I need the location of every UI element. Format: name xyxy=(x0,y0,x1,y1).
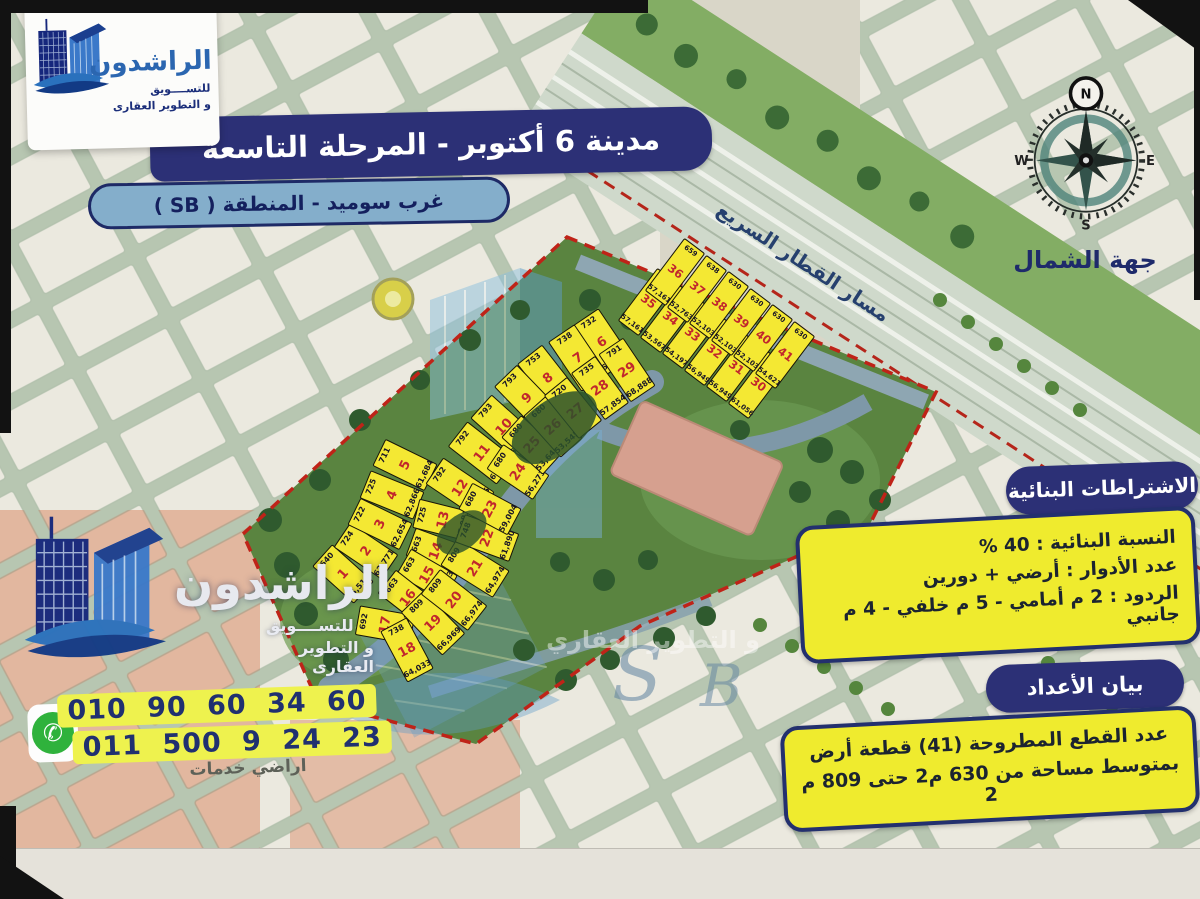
building-requirements-box: النسبة البنائية : 40 % عدد الأدوار : أرض… xyxy=(795,506,1200,665)
watermark-phrase: و التطوير العقاري xyxy=(546,626,760,654)
brand-tagline-2: و التطوير العقارى xyxy=(113,98,211,114)
watermark-letter-b: B xyxy=(699,652,743,720)
brand-tagline-1: للتســــويق xyxy=(150,82,211,97)
watermark-tagline-2: و التطوير العقارى xyxy=(236,638,374,676)
compass-rose: N S E W xyxy=(1008,72,1164,232)
north-direction-label: جهة الشمال xyxy=(1000,240,1170,280)
watermark-tagline-1: للتســــويق xyxy=(266,616,354,635)
requirement-line-3: الردود : 2 م أمامي - 5 م خلفي - 4 م جانب… xyxy=(819,583,1181,644)
watermark-brand-name: الراشدون xyxy=(174,556,391,610)
compass-e: E xyxy=(1146,154,1155,169)
photo-edge-right xyxy=(1194,0,1200,300)
counts-line-2: بمتوسط مساحة من 630 م2 حتى 809 م 2 xyxy=(800,752,1182,816)
contact-phones: 010 90 60 34 60 011 500 9 24 23 xyxy=(57,685,339,765)
zone-banner: غرب سوميد - المنطقة ( SB ) xyxy=(88,176,511,229)
watermark-logo: الراشدون للتســــويق و التطوير العقارى xyxy=(14,508,374,708)
page-title: مدينة 6 أكتوبر - المرحلة التاسعة xyxy=(202,122,661,166)
photo-edge-left xyxy=(0,13,11,433)
counts-box: عدد القطع المطروحة (41) قطعة أرض بمتوسط … xyxy=(780,705,1200,833)
paper-margin xyxy=(0,848,1200,899)
compass-s: S xyxy=(1081,219,1090,232)
title-banner: مدينة 6 أكتوبر - المرحلة التاسعة xyxy=(149,106,712,182)
counts-header: بيان الأعداد xyxy=(985,659,1185,714)
brand-name: الراشدون xyxy=(89,46,212,79)
photo-edge-top xyxy=(0,0,648,13)
compass-w: W xyxy=(1014,154,1029,169)
company-logo-card: الراشدون للتســــويق و التطوير العقارى xyxy=(24,0,220,150)
zone-label: غرب سوميد - المنطقة ( SB ) xyxy=(154,188,445,217)
compass-n: N xyxy=(1081,87,1092,102)
map-photo: مسار القطار السريع xyxy=(0,0,1200,899)
